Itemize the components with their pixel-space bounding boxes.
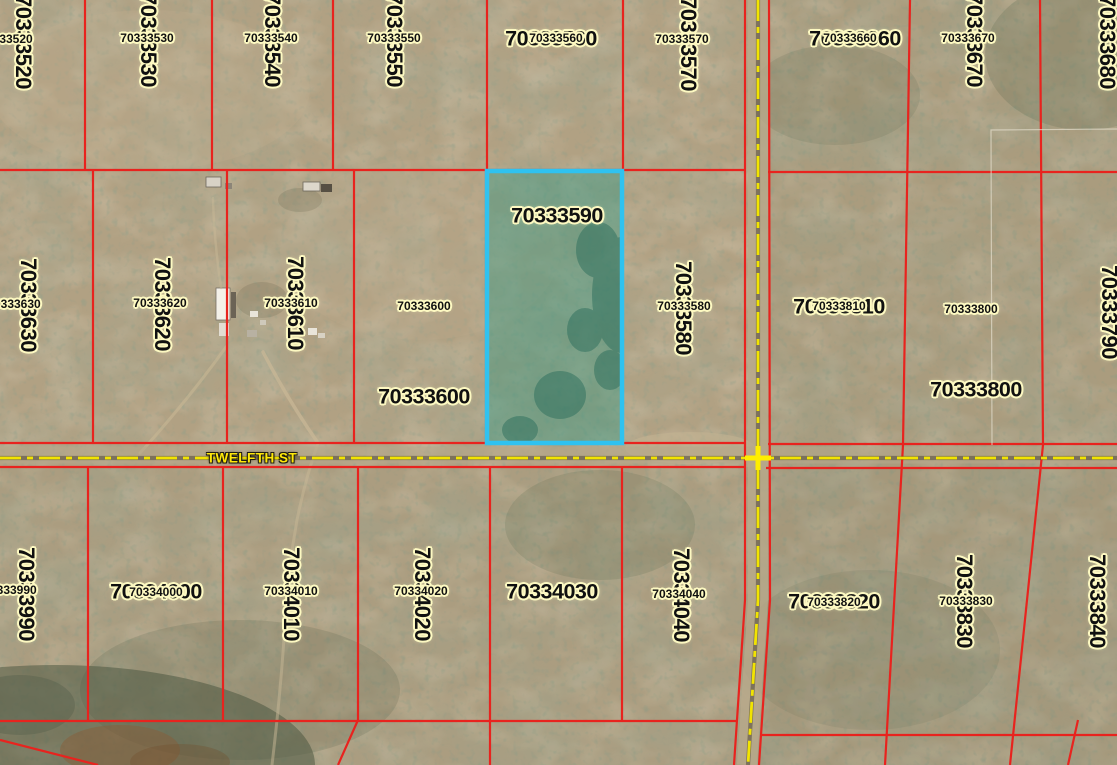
street-name-label: TWELFTH ST: [207, 451, 297, 465]
gis-map-viewport[interactable]: 7033352070333530703335407033355070333570…: [0, 0, 1117, 765]
aerial-imagery-layer: [0, 0, 1117, 765]
